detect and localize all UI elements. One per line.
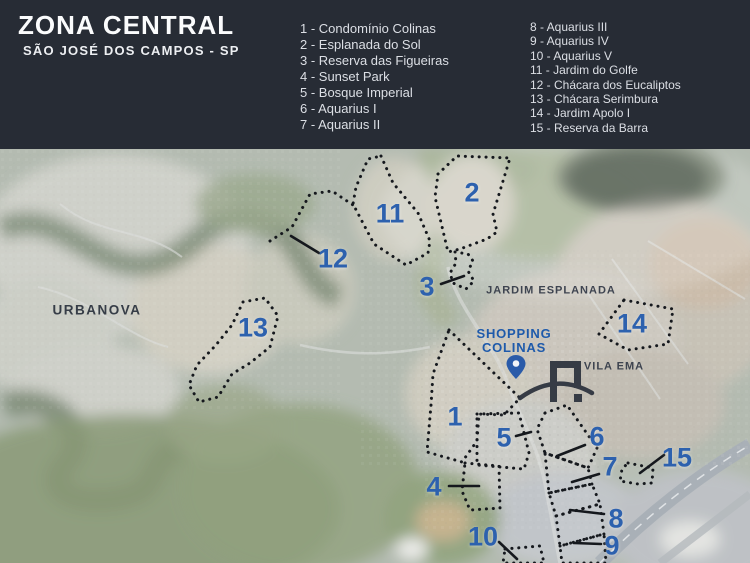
poi-label-shopping-colinas: SHOPPING COLINAS [476,327,551,355]
legend-item: 13 - Chácara Serimbura [530,92,681,106]
area-label-jardim-esplanada: JARDIM ESPLANADA [486,286,616,297]
legend-item: 8 - Aquarius III [530,20,681,34]
region-number-2: 2 [464,180,479,207]
legend-item: 2 - Esplanada do Sol [300,37,449,53]
region-number-14: 14 [617,311,647,338]
region-number-15: 15 [662,445,692,472]
legend-column-2: 8 - Aquarius III9 - Aquarius IV10 - Aqua… [530,20,681,135]
region-number-12: 12 [318,246,348,273]
region-number-11: 11 [376,201,405,228]
region-number-6: 6 [589,424,604,451]
region-number-3: 3 [419,274,434,301]
legend-item: 7 - Aquarius II [300,117,449,133]
legend-item: 1 - Condomínio Colinas [300,21,449,37]
area-label-vila-ema: VILA EMA [584,362,644,373]
legend-item: 10 - Aquarius V [530,49,681,63]
legend-item: 9 - Aquarius IV [530,34,681,48]
region-number-9: 9 [604,533,619,560]
region-number-1: 1 [447,404,462,431]
page-title: ZONA CENTRAL [18,10,234,41]
legend-item: 5 - Bosque Imperial [300,85,449,101]
leader-9 [574,543,601,544]
poi-line-2: COLINAS [476,341,551,355]
legend-item: 3 - Reserva das Figueiras [300,53,449,69]
infographic-page: ZONA CENTRAL SÃO JOSÉ DOS CAMPOS - SP 1 … [0,0,750,563]
legend-column-1: 1 - Condomínio Colinas2 - Esplanada do S… [300,21,449,133]
header: ZONA CENTRAL SÃO JOSÉ DOS CAMPOS - SP 1 … [0,0,750,149]
legend-item: 15 - Reserva da Barra [530,121,681,135]
region-number-7: 7 [602,454,617,481]
region-number-4: 4 [426,474,441,501]
region-number-13: 13 [238,315,268,342]
legend-item: 14 - Jardim Apolo I [530,106,681,120]
legend-item: 4 - Sunset Park [300,69,449,85]
region-number-8: 8 [608,506,623,533]
poi-line-1: SHOPPING [476,327,551,341]
map-canvas: SHOPPING COLINAS URBANOVAJARDIM ESPLANAD… [0,149,750,563]
area-label-urbanova: URBANOVA [53,303,142,317]
legend-item: 11 - Jardim do Golfe [530,63,681,77]
dark-forest-patch [567,149,707,209]
legend-item: 6 - Aquarius I [300,101,449,117]
region-number-10: 10 [468,524,498,551]
region-number-5: 5 [496,425,511,452]
legend-item: 12 - Chácara dos Eucaliptos [530,78,681,92]
page-subtitle: SÃO JOSÉ DOS CAMPOS - SP [23,43,240,58]
